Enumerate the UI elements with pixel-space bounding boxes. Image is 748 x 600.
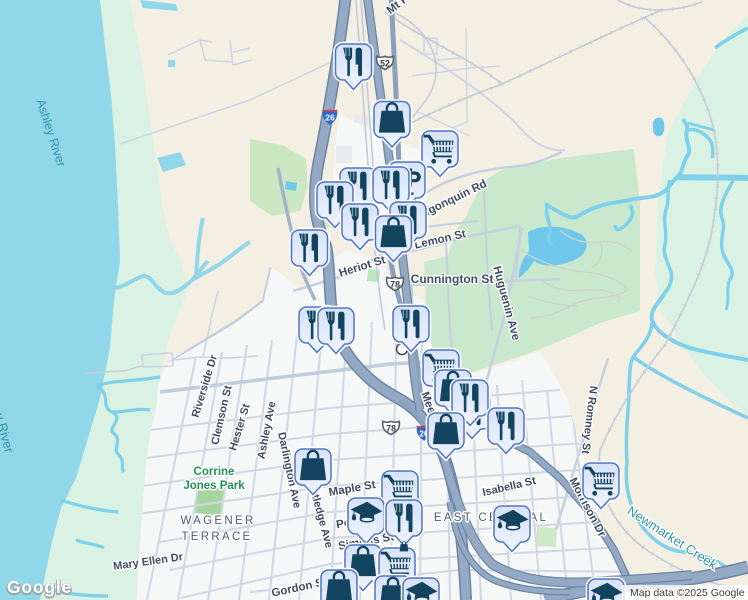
svg-text:Jones Park: Jones Park — [183, 480, 245, 492]
svg-text:52: 52 — [380, 59, 390, 69]
svg-text:Cunnington St: Cunnington St — [411, 272, 494, 286]
svg-text:Corrine: Corrine — [194, 466, 235, 478]
svg-text:78: 78 — [386, 424, 396, 434]
svg-text:Map data ©2025 Google: Map data ©2025 Google — [630, 587, 745, 599]
svg-text:26: 26 — [325, 113, 335, 123]
svg-text:TERRACE: TERRACE — [181, 531, 252, 543]
svg-text:Google: Google — [7, 577, 72, 597]
svg-text:WAGENER: WAGENER — [180, 515, 255, 527]
svg-text:78: 78 — [390, 280, 400, 290]
